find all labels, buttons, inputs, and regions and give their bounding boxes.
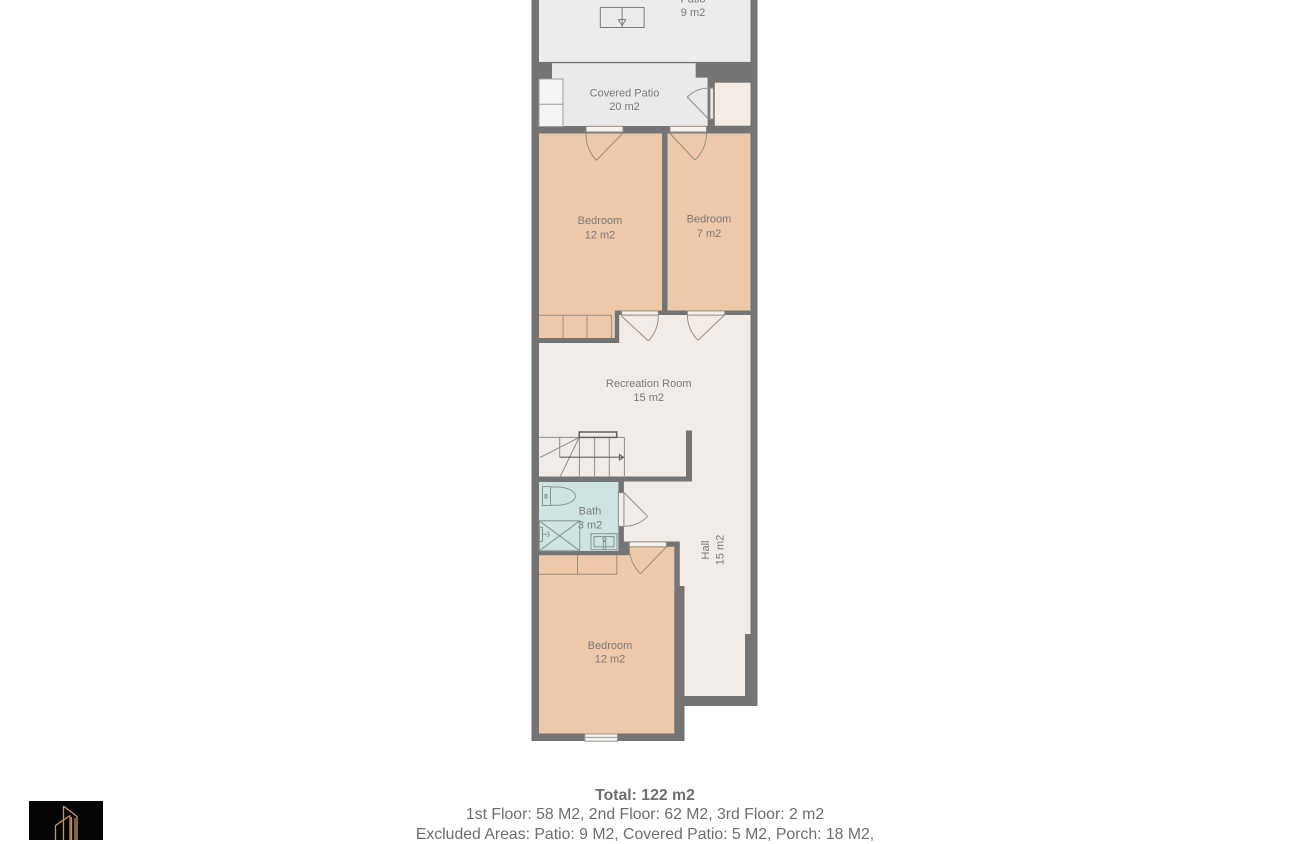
svg-text:7 m2: 7 m2: [697, 228, 721, 240]
svg-text:Bedroom: Bedroom: [687, 213, 732, 225]
svg-text:Bedroom: Bedroom: [588, 640, 633, 652]
svg-text:Patio: Patio: [680, 0, 705, 5]
svg-text:15 m2: 15 m2: [633, 392, 664, 404]
svg-text:15 m2: 15 m2: [714, 535, 726, 566]
svg-text:3 m2: 3 m2: [578, 519, 602, 531]
svg-text:Hall: Hall: [700, 541, 712, 560]
svg-text:Bath: Bath: [579, 506, 602, 518]
svg-text:Bedroom: Bedroom: [578, 215, 623, 227]
svg-text:12 m2: 12 m2: [585, 230, 616, 242]
svg-text:Covered Patio: Covered Patio: [590, 88, 660, 100]
svg-text:20 m2: 20 m2: [609, 101, 640, 113]
svg-text:Recreation Room: Recreation Room: [606, 378, 692, 390]
svg-text:12 m2: 12 m2: [595, 653, 626, 665]
svg-text:9 m2: 9 m2: [681, 7, 705, 19]
